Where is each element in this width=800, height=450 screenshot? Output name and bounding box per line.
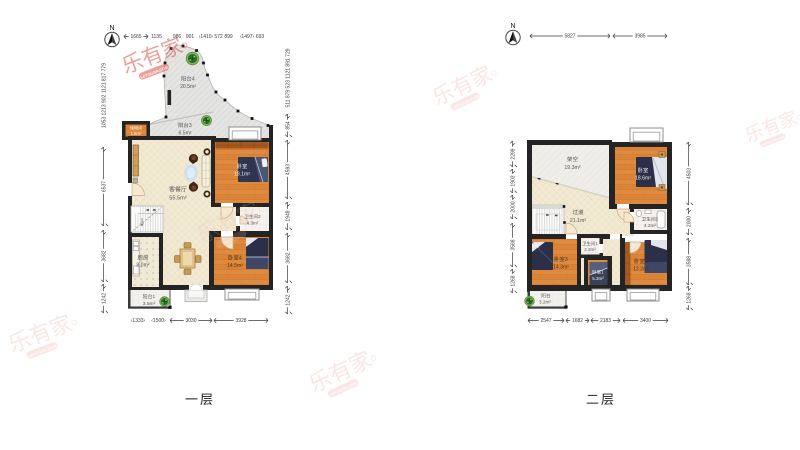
svg-text:511 879 523 1121 891 729: 511 879 523 1121 891 729 <box>285 48 291 107</box>
svg-text:3682: 3682 <box>285 252 291 263</box>
svg-text:3.2m²: 3.2m² <box>539 300 551 305</box>
svg-text:1903: 1903 <box>510 175 516 186</box>
svg-text:2299: 2299 <box>510 148 516 159</box>
svg-text:2547: 2547 <box>540 318 551 324</box>
svg-text:3400: 3400 <box>640 318 651 324</box>
svg-text:N: N <box>510 23 515 30</box>
svg-text:3928: 3928 <box>235 318 246 324</box>
svg-text:1268: 1268 <box>510 275 516 286</box>
svg-text:5827: 5827 <box>564 34 575 40</box>
svg-text:1.5m²: 1.5m² <box>131 131 142 136</box>
svg-text:2000: 2000 <box>686 216 692 227</box>
svg-text:4.2m²: 4.2m² <box>644 223 656 228</box>
svg-text:3682: 3682 <box>101 250 107 261</box>
svg-text:4593: 4593 <box>285 164 291 175</box>
svg-text:3: 3 <box>189 123 192 129</box>
svg-text:4503: 4503 <box>686 168 692 179</box>
svg-text:1948: 1948 <box>285 210 291 221</box>
svg-text:1242: 1242 <box>285 294 291 305</box>
svg-text:4: 4 <box>192 76 195 82</box>
svg-text:1682: 1682 <box>572 318 583 324</box>
svg-text:6537: 6537 <box>101 181 107 192</box>
svg-text:1135: 1135 <box>151 34 162 40</box>
svg-text:18.6m²: 18.6m² <box>635 175 651 181</box>
svg-text:3030: 3030 <box>185 318 196 324</box>
svg-text:14.5m²: 14.5m² <box>227 263 243 269</box>
svg-text:21.1m²: 21.1m² <box>570 218 586 224</box>
svg-text:20.5m²: 20.5m² <box>180 84 196 90</box>
svg-text:2.3m²: 2.3m² <box>584 247 596 252</box>
svg-text:‹1410›: ‹1410› <box>199 34 214 40</box>
svg-text:3.5m²: 3.5m² <box>143 301 156 307</box>
svg-text:6.5m²: 6.5m² <box>178 130 191 136</box>
svg-text:1268: 1268 <box>686 292 692 303</box>
svg-text:899: 899 <box>224 34 233 40</box>
svg-text:‹1497›: ‹1497› <box>240 34 255 40</box>
svg-text:5.3m²: 5.3m² <box>592 276 604 281</box>
svg-text:1: 1 <box>153 294 156 300</box>
svg-text:3588: 3588 <box>510 239 516 250</box>
svg-text:4.3m²: 4.3m² <box>247 221 259 226</box>
svg-text:2000: 2000 <box>510 201 516 212</box>
svg-text:8.0m²: 8.0m² <box>136 262 150 268</box>
svg-text:1665: 1665 <box>130 34 141 40</box>
svg-text:2183: 2183 <box>600 318 611 324</box>
svg-text:18.1m²: 18.1m² <box>234 171 250 177</box>
svg-text:3: 3 <box>565 257 568 263</box>
svg-text:3985: 3985 <box>634 34 645 40</box>
svg-text:3588: 3588 <box>686 256 692 267</box>
svg-text:986: 986 <box>173 34 182 40</box>
svg-text:14.3m²: 14.3m² <box>553 264 569 270</box>
svg-text:901: 901 <box>186 34 195 40</box>
svg-text:854: 854 <box>285 121 291 130</box>
svg-text:1053 1213 902 1121 817 779: 1053 1213 902 1121 817 779 <box>101 63 107 128</box>
svg-text:‹1333›: ‹1333› <box>131 318 146 324</box>
svg-text:693: 693 <box>256 34 265 40</box>
svg-text:1242: 1242 <box>101 293 107 304</box>
svg-text:572: 572 <box>214 34 223 40</box>
svg-text:4: 4 <box>239 255 242 261</box>
svg-text:‹1500›: ‹1500› <box>151 318 166 324</box>
svg-text:12.2m²: 12.2m² <box>633 266 649 272</box>
svg-text:55.5m²: 55.5m² <box>169 195 187 201</box>
svg-text:19.3m²: 19.3m² <box>564 165 580 171</box>
svg-text:2: 2 <box>645 259 648 265</box>
svg-text:N: N <box>109 25 114 32</box>
